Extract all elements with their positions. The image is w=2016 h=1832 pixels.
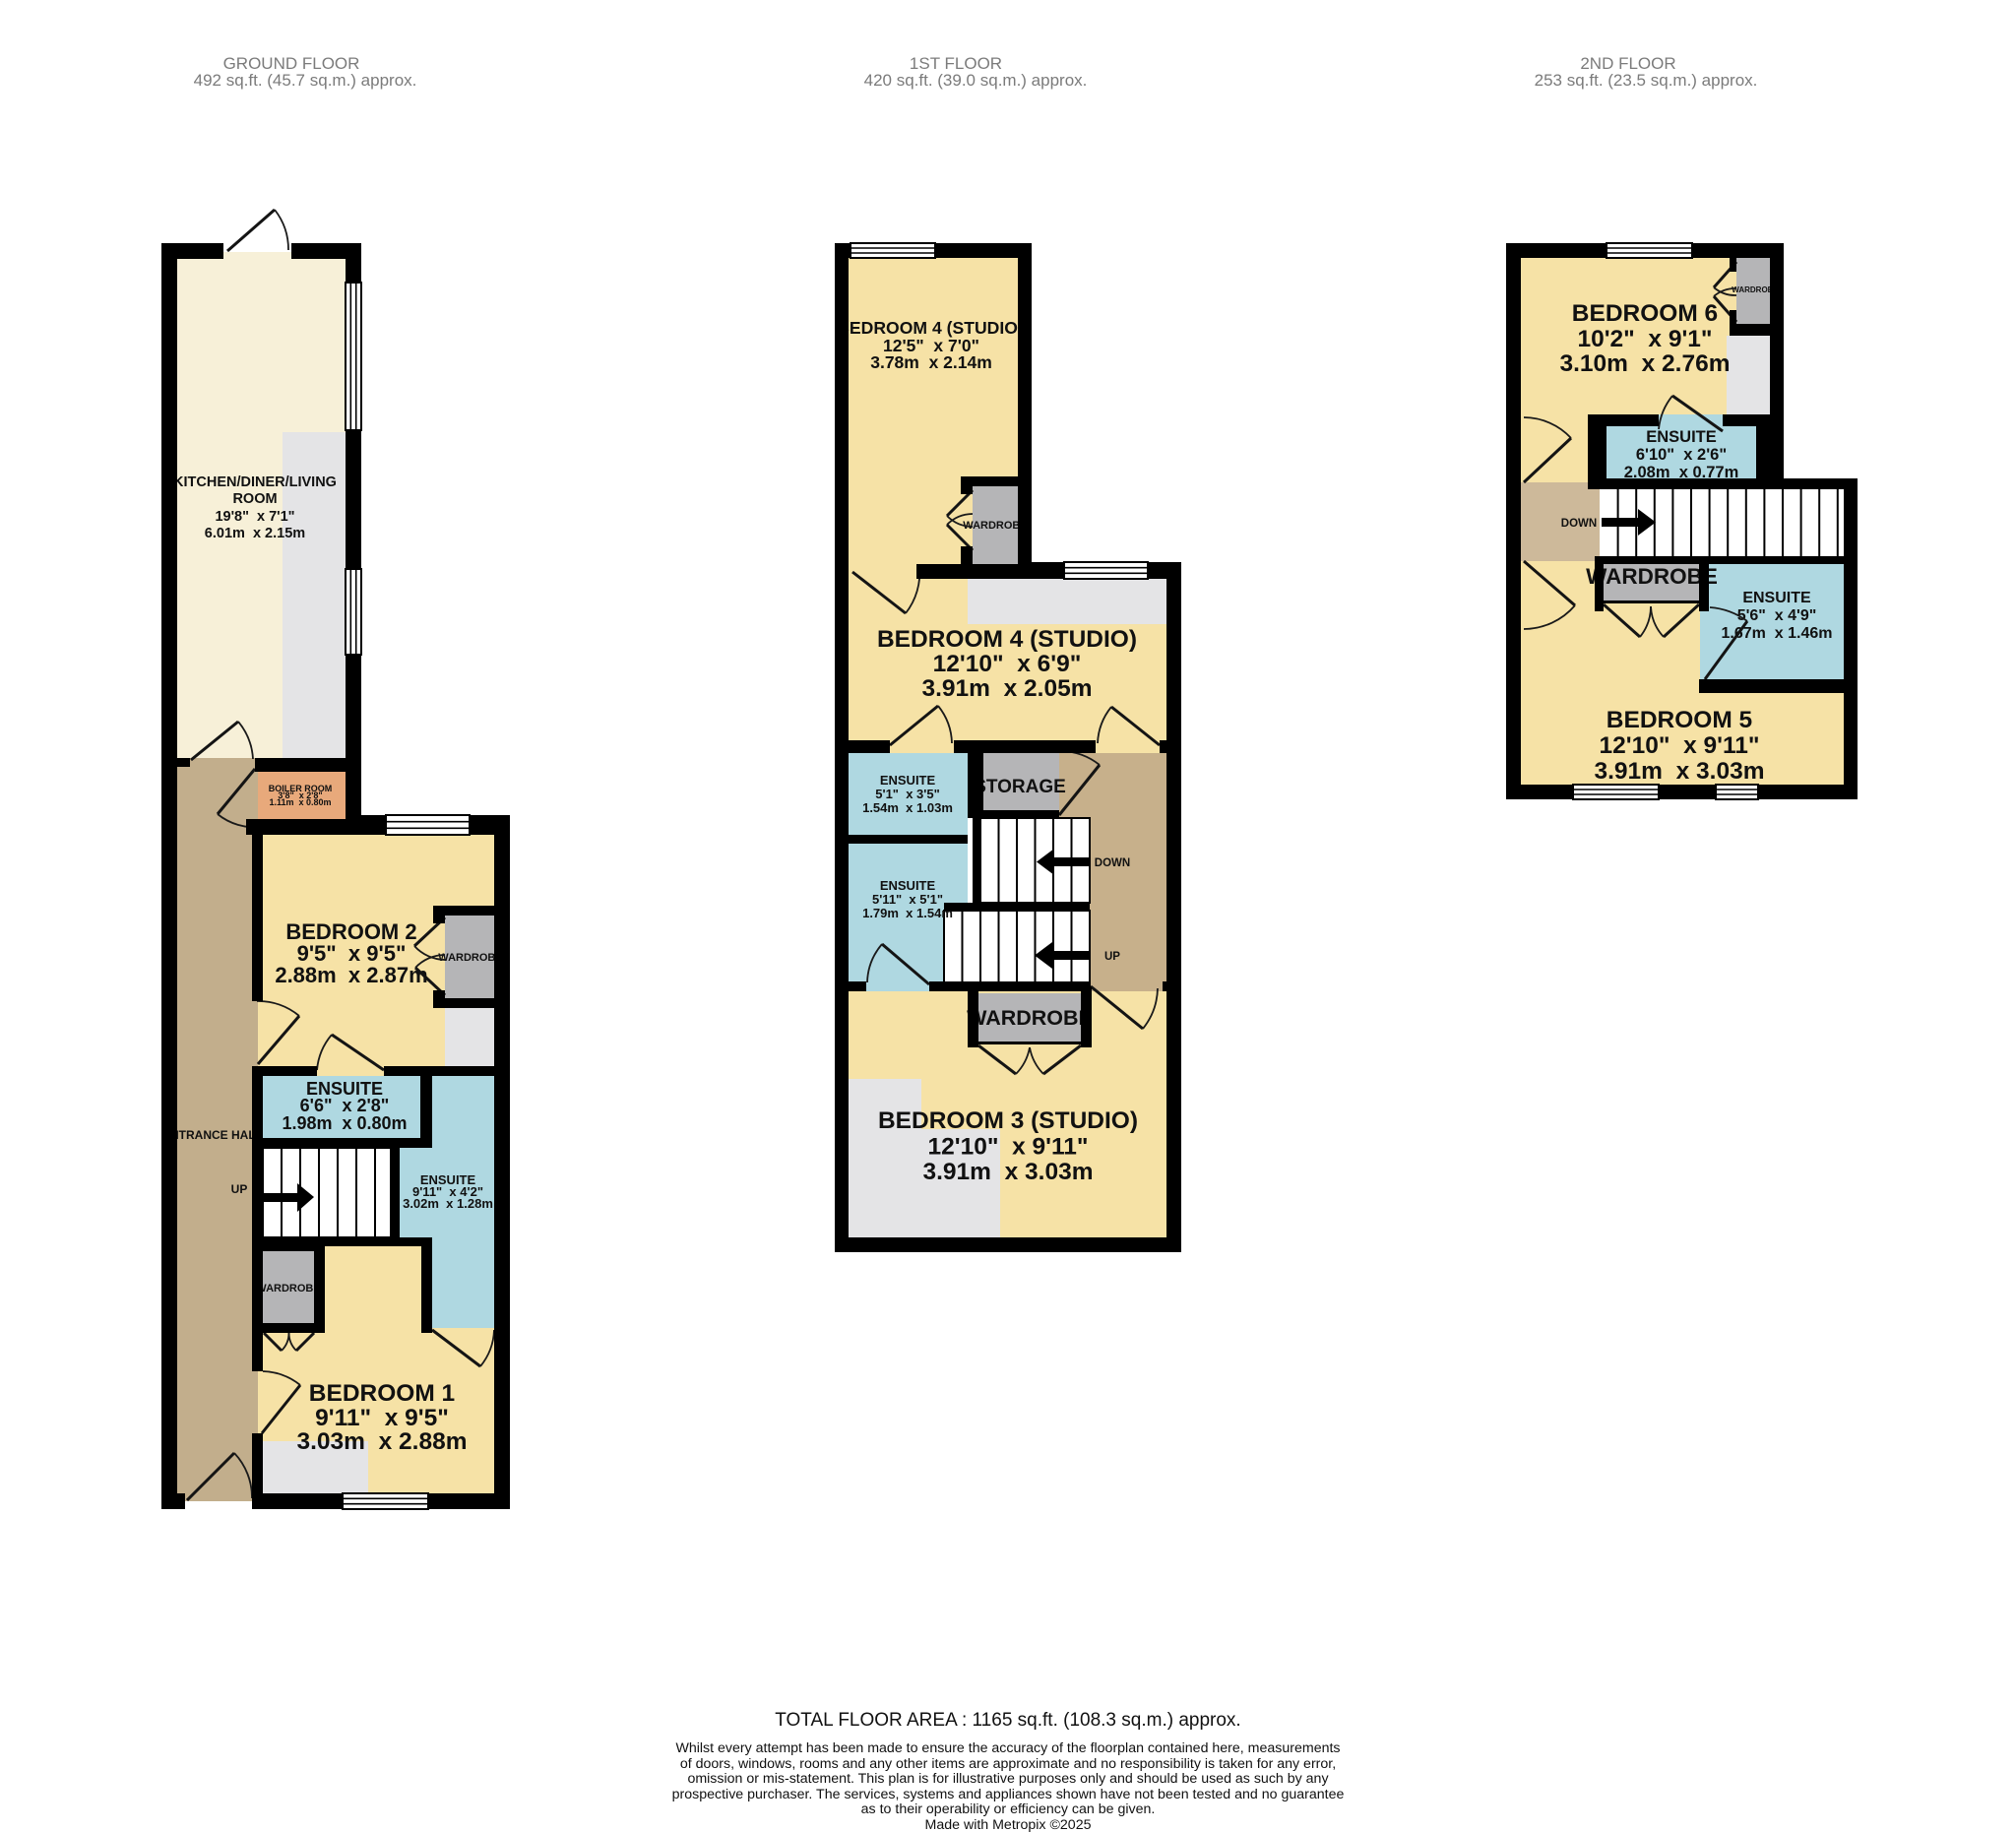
svg-text:1.98m x 0.80m: 1.98m x 0.80m: [282, 1113, 407, 1133]
svg-text:1.11m x 0.80m: 1.11m x 0.80m: [269, 797, 331, 807]
svg-text:WARDROBE: WARDROBE: [967, 1006, 1093, 1030]
svg-text:BEDROOM 1: BEDROOM 1: [309, 1380, 455, 1407]
svg-text:6.01m x 2.15m: 6.01m x 2.15m: [205, 526, 305, 541]
svg-text:12'10" x 6'9": 12'10" x 6'9": [933, 651, 1082, 677]
svg-text:ENSUITE: ENSUITE: [880, 878, 936, 893]
svg-text:STORAGE: STORAGE: [974, 777, 1066, 797]
svg-text:19'8" x 7'1": 19'8" x 7'1": [215, 509, 294, 525]
svg-text:1.54m x 1.03m: 1.54m x 1.03m: [862, 800, 953, 815]
svg-text:WARDROBE: WARDROBE: [256, 1283, 320, 1295]
svg-text:12'10" x 9'11": 12'10" x 9'11": [928, 1134, 1089, 1161]
svg-text:ENSUITE: ENSUITE: [1742, 590, 1811, 606]
svg-text:420 sq.ft. (39.0 sq.m.) approx: 420 sq.ft. (39.0 sq.m.) approx.: [864, 71, 1088, 90]
svg-text:UP: UP: [231, 1182, 248, 1196]
svg-text:ENTRANCE HALL: ENTRANCE HALL: [162, 1128, 263, 1142]
svg-text:3.02m x 1.28m: 3.02m x 1.28m: [403, 1196, 493, 1211]
svg-text:BEDROOM 4 (STUDIO): BEDROOM 4 (STUDIO): [877, 626, 1137, 653]
svg-text:as to their operability or eff: as to their operability or efficiency ca…: [861, 1801, 1156, 1817]
svg-text:1.79m x 1.54m: 1.79m x 1.54m: [862, 906, 953, 920]
svg-text:6'6" x 2'8": 6'6" x 2'8": [300, 1096, 390, 1115]
svg-text:253 sq.ft. (23.5 sq.m.) approx: 253 sq.ft. (23.5 sq.m.) approx.: [1535, 71, 1758, 90]
svg-text:12'10" x 9'11": 12'10" x 9'11": [1600, 732, 1760, 759]
svg-text:UP: UP: [1104, 951, 1120, 963]
svg-text:DOWN: DOWN: [1561, 518, 1597, 530]
svg-text:492 sq.ft. (45.7 sq.m.) approx: 492 sq.ft. (45.7 sq.m.) approx.: [194, 71, 417, 90]
svg-text:WARDROBE: WARDROBE: [438, 952, 502, 964]
svg-text:3.78m x 2.14m: 3.78m x 2.14m: [870, 352, 992, 372]
svg-text:ROOM: ROOM: [232, 491, 277, 507]
svg-text:DOWN: DOWN: [1095, 857, 1130, 869]
svg-text:BEDROOM 5: BEDROOM 5: [1606, 707, 1752, 733]
svg-text:omission or mis-statement. Thi: omission or mis-statement. This plan is …: [687, 1771, 1329, 1787]
svg-text:WARDROBE: WARDROBE: [963, 520, 1027, 532]
svg-text:5'6" x 4'9": 5'6" x 4'9": [1737, 607, 1817, 624]
svg-text:3.03m x 2.88m: 3.03m x 2.88m: [297, 1428, 468, 1455]
svg-text:ENSUITE: ENSUITE: [1646, 428, 1717, 446]
svg-text:9'11" x 9'5": 9'11" x 9'5": [315, 1405, 449, 1431]
svg-text:prospective purchaser. The ser: prospective purchaser. The services, sys…: [672, 1787, 1345, 1802]
svg-text:5'11" x 5'1": 5'11" x 5'1": [872, 892, 943, 907]
svg-text:BEDROOM 6: BEDROOM 6: [1572, 300, 1718, 327]
svg-text:Whilst every attempt has been: Whilst every attempt has been made to en…: [675, 1740, 1340, 1756]
svg-text:BEDROOM 3 (STUDIO): BEDROOM 3 (STUDIO): [878, 1107, 1138, 1134]
svg-text:WARDROBE: WARDROBE: [1586, 564, 1718, 589]
svg-text:KITCHEN/DINER/LIVING: KITCHEN/DINER/LIVING: [173, 474, 337, 490]
svg-text:3.10m x 2.76m: 3.10m x 2.76m: [1560, 350, 1731, 377]
svg-text:TOTAL FLOOR AREA : 1165 sq.ft.: TOTAL FLOOR AREA : 1165 sq.ft. (108.3 sq…: [775, 1710, 1240, 1731]
svg-text:Made with Metropix ©2025: Made with Metropix ©2025: [925, 1817, 1092, 1832]
svg-text:of doors, windows, rooms and a: of doors, windows, rooms and any other i…: [680, 1756, 1336, 1772]
svg-text:2.88m x 2.87m: 2.88m x 2.87m: [275, 963, 427, 987]
svg-text:BEDROOM 4 (STUDIO): BEDROOM 4 (STUDIO): [837, 318, 1024, 338]
svg-text:ENSUITE: ENSUITE: [880, 773, 936, 788]
svg-text:3.91m x 2.05m: 3.91m x 2.05m: [922, 675, 1093, 702]
svg-text:3.91m x 3.03m: 3.91m x 3.03m: [923, 1159, 1094, 1185]
svg-text:6'10" x 2'6": 6'10" x 2'6": [1636, 446, 1727, 464]
svg-text:5'1" x 3'5": 5'1" x 3'5": [875, 787, 940, 801]
svg-text:3.91m x 3.03m: 3.91m x 3.03m: [1595, 758, 1765, 785]
svg-text:10'2" x 9'1": 10'2" x 9'1": [1577, 326, 1712, 352]
